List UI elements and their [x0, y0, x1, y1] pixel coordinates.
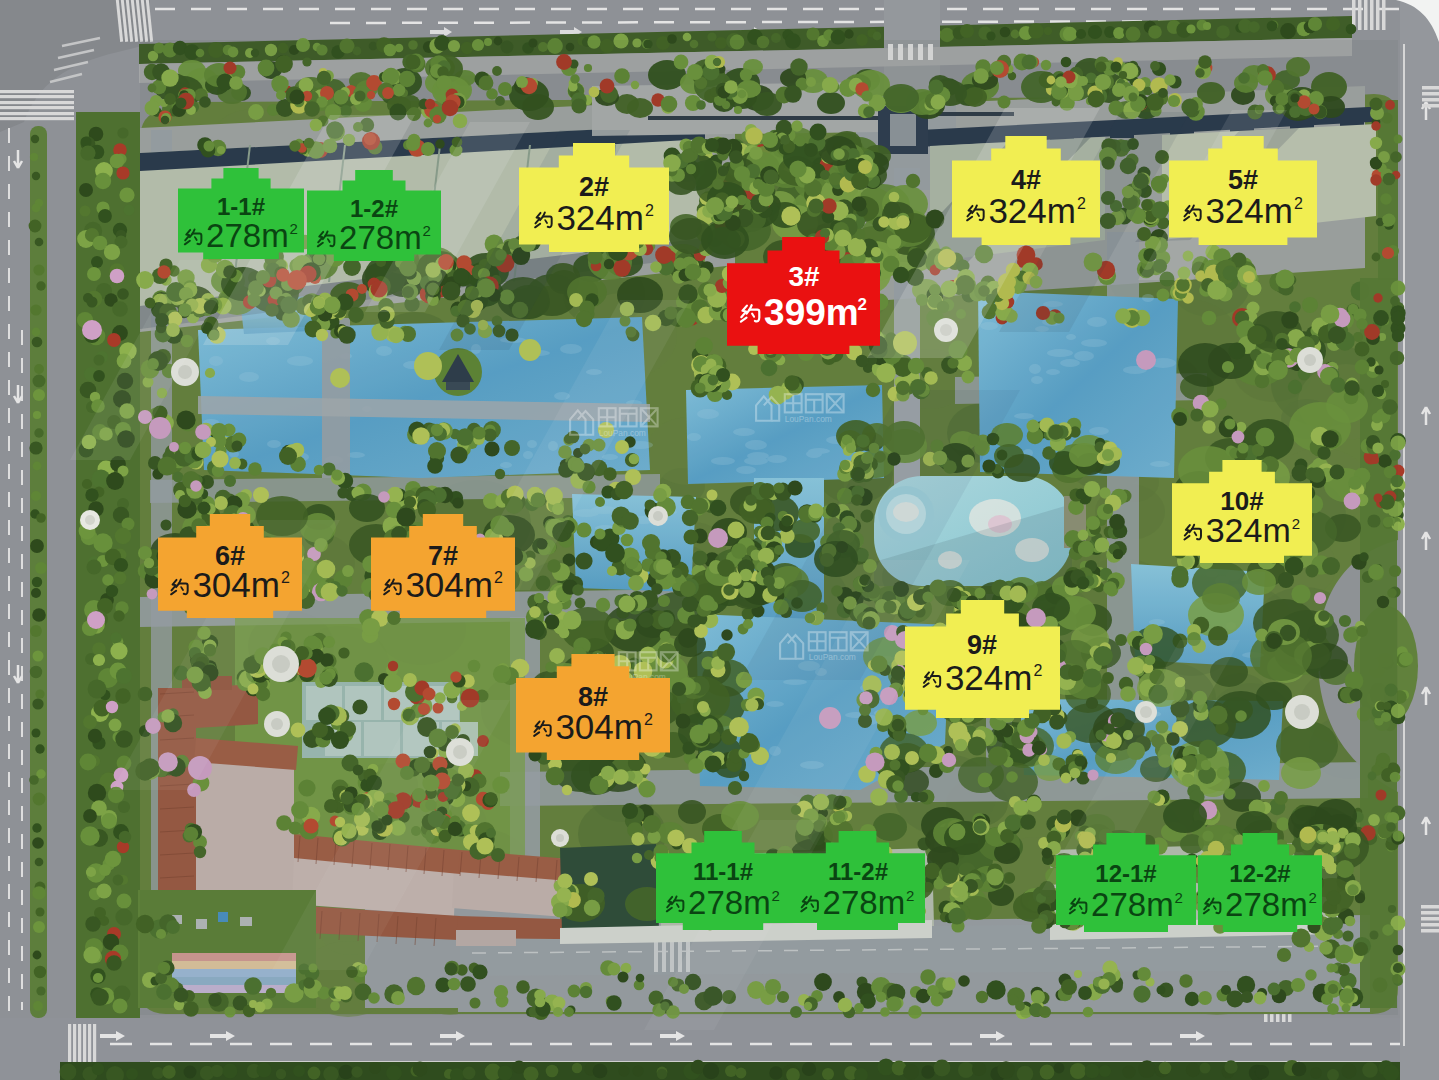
svg-text:11-2#: 11-2#: [828, 858, 888, 885]
svg-text:304m: 304m: [405, 565, 493, 604]
svg-text:278m: 278m: [823, 884, 906, 921]
svg-text:2: 2: [1292, 515, 1300, 532]
svg-text:2: 2: [494, 569, 503, 586]
svg-text:2: 2: [423, 222, 431, 239]
svg-text:12-2#: 12-2#: [1229, 860, 1290, 887]
svg-text:2: 2: [1175, 889, 1183, 906]
svg-text:2: 2: [1077, 195, 1086, 212]
svg-text:2: 2: [290, 220, 298, 237]
svg-text:11-1#: 11-1#: [693, 858, 753, 885]
svg-text:324m: 324m: [945, 658, 1033, 697]
svg-text:2: 2: [1294, 195, 1303, 212]
svg-text:2: 2: [772, 887, 780, 904]
svg-text:278m: 278m: [688, 884, 771, 921]
svg-text:12-1#: 12-1#: [1095, 860, 1156, 887]
svg-text:278m: 278m: [1091, 886, 1174, 923]
svg-text:278m: 278m: [339, 219, 422, 256]
svg-text:2: 2: [1309, 889, 1317, 906]
svg-text:1-1#: 1-1#: [217, 193, 265, 220]
svg-text:278m: 278m: [206, 217, 289, 254]
svg-text:324m: 324m: [556, 198, 644, 237]
svg-text:2: 2: [645, 202, 654, 219]
svg-text:324m: 324m: [1205, 191, 1293, 230]
svg-text:2: 2: [906, 887, 914, 904]
svg-text:2: 2: [281, 569, 290, 586]
svg-text:324m: 324m: [1206, 511, 1291, 549]
svg-text:2: 2: [644, 711, 653, 728]
svg-text:304m: 304m: [192, 565, 280, 604]
svg-text:1-2#: 1-2#: [350, 195, 398, 222]
svg-text:278m: 278m: [1225, 886, 1308, 923]
svg-text:2: 2: [1033, 662, 1042, 679]
svg-text:9#: 9#: [967, 630, 997, 660]
svg-text:399m: 399m: [764, 292, 859, 333]
svg-text:2: 2: [858, 295, 867, 314]
svg-text:304m: 304m: [555, 707, 643, 746]
svg-text:3#: 3#: [788, 261, 820, 292]
svg-text:324m: 324m: [988, 191, 1076, 230]
